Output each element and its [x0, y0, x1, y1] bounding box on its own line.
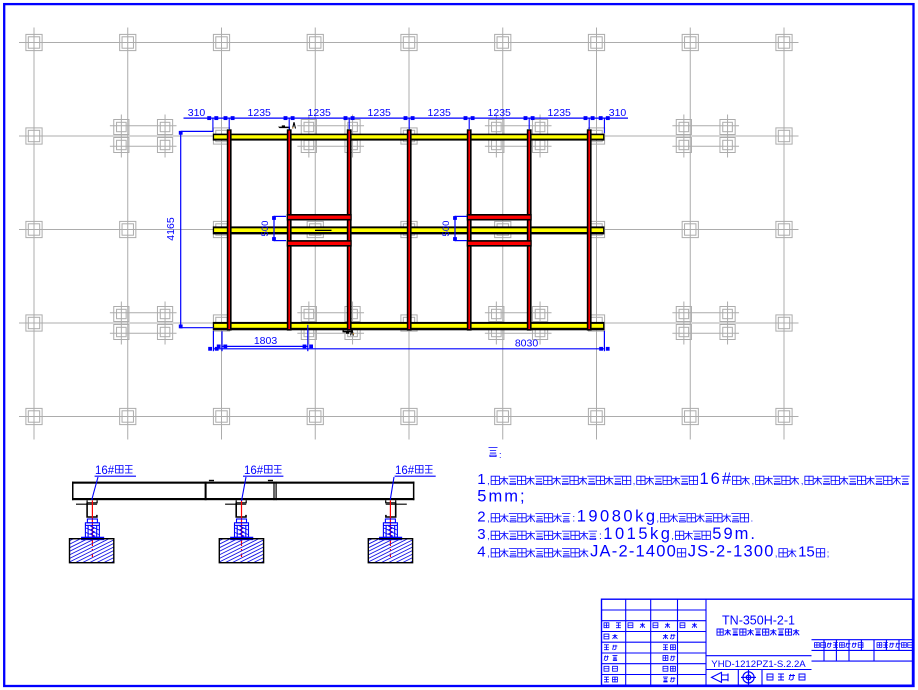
svg-text:16#: 16#: [244, 465, 264, 477]
svg-text:310: 310: [188, 107, 206, 119]
svg-text:JA-2-1400: JA-2-1400: [590, 543, 677, 561]
svg-text::: :: [499, 450, 502, 460]
svg-text:,: ,: [752, 476, 755, 486]
svg-text:,: ,: [775, 549, 778, 559]
svg-text:;: ;: [827, 549, 830, 559]
svg-text:JS-2-1300: JS-2-1300: [688, 543, 775, 561]
svg-text:310: 310: [609, 107, 627, 119]
svg-text:3: 3: [477, 526, 485, 543]
svg-text:16#: 16#: [95, 465, 115, 477]
svg-text:500: 500: [260, 221, 271, 237]
svg-text:1235: 1235: [428, 107, 452, 119]
svg-text:1235: 1235: [548, 107, 572, 119]
svg-text:1235: 1235: [248, 107, 272, 119]
svg-text:1235: 1235: [368, 107, 392, 119]
svg-text:,: ,: [633, 476, 636, 486]
svg-text:5mm;: 5mm;: [477, 488, 526, 506]
svg-text::: :: [572, 514, 575, 525]
svg-text:YHD-1212PZ1-S.2.2A: YHD-1212PZ1-S.2.2A: [711, 659, 806, 670]
svg-text:59m.: 59m.: [712, 525, 757, 543]
svg-text:,: ,: [487, 476, 490, 486]
svg-text:.: .: [751, 514, 754, 524]
svg-text:19080kg: 19080kg: [577, 508, 658, 526]
svg-text:4165: 4165: [165, 217, 177, 241]
svg-text::: :: [599, 531, 602, 542]
svg-text:1803: 1803: [254, 335, 278, 347]
svg-text:,: ,: [671, 531, 674, 541]
svg-text:15: 15: [798, 544, 815, 561]
svg-text:,: ,: [487, 549, 490, 559]
svg-text:,: ,: [657, 514, 660, 524]
svg-text:2: 2: [477, 509, 485, 526]
svg-text:,: ,: [487, 514, 490, 524]
svg-text:1235: 1235: [488, 107, 512, 119]
svg-text:1: 1: [477, 471, 485, 488]
svg-text:1235: 1235: [308, 107, 332, 119]
svg-text:8030: 8030: [515, 338, 539, 350]
svg-text:500: 500: [441, 221, 452, 237]
svg-text:,: ,: [487, 531, 490, 541]
svg-text:16#: 16#: [395, 465, 415, 477]
svg-text:1015kg: 1015kg: [603, 525, 672, 543]
svg-text:16#: 16#: [700, 470, 734, 488]
svg-text:,: ,: [801, 476, 804, 486]
svg-text:4: 4: [477, 544, 485, 561]
svg-text:TN-350H-2-1: TN-350H-2-1: [722, 614, 795, 628]
